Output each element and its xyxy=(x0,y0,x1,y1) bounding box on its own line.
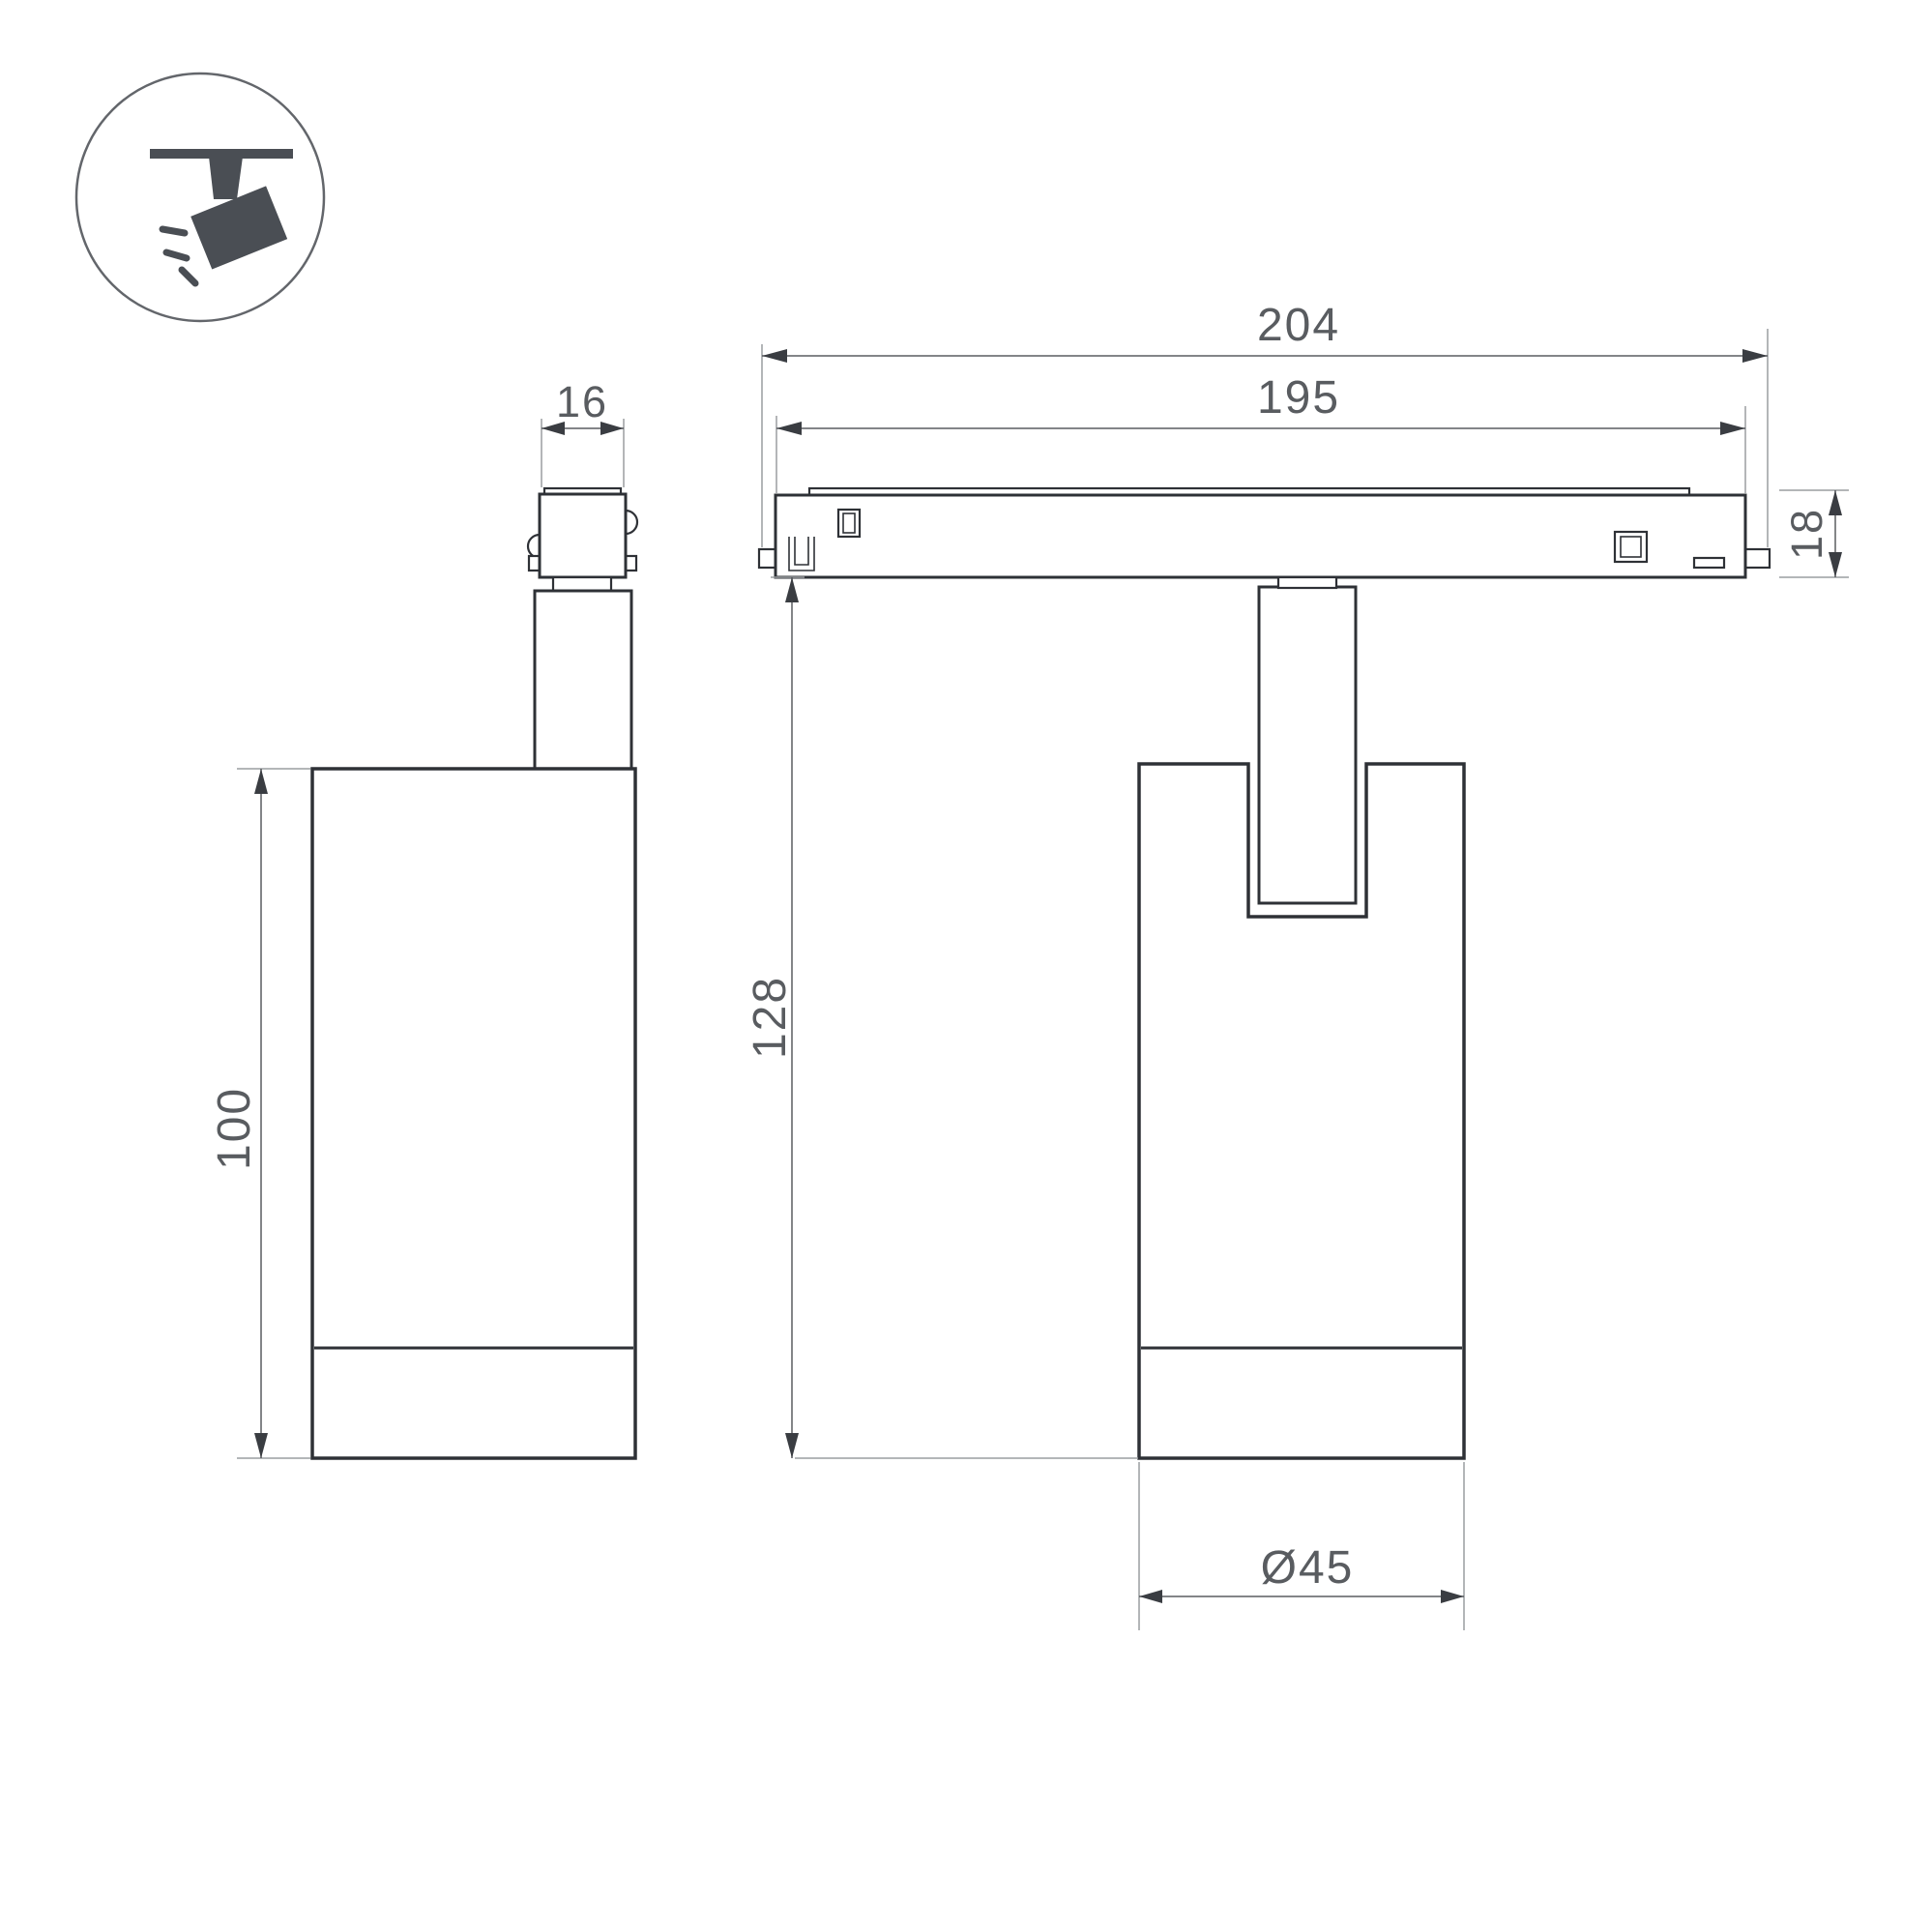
dimension-track-height: 18 xyxy=(1779,490,1849,577)
dim-label-stem-width: 16 xyxy=(556,377,608,426)
track-slot xyxy=(1694,558,1724,568)
dimension-body-diameter: Ø45 xyxy=(1139,1462,1464,1630)
stem-neck xyxy=(553,577,611,591)
connector-lug-left xyxy=(529,556,540,571)
stem xyxy=(535,591,631,769)
dim-label-body-diameter: Ø45 xyxy=(1261,1542,1355,1594)
front-view xyxy=(759,488,1770,1458)
dimension-drawing-page: 16 100 204 xyxy=(0,0,1932,1932)
track-end-tab-left xyxy=(759,549,776,568)
connector-lug-right xyxy=(626,556,636,571)
stem-connector xyxy=(1278,577,1336,588)
dim-label-body-height: 100 xyxy=(209,1087,260,1170)
product-icon xyxy=(76,73,324,321)
dim-label-track-height: 18 xyxy=(1782,508,1831,560)
dimension-body-height: 100 xyxy=(209,769,310,1458)
drawing-canvas: 16 100 204 xyxy=(0,0,1932,1932)
magnetic-track xyxy=(776,495,1745,577)
lamp-body xyxy=(312,769,635,1458)
dim-label-rail-length: 195 xyxy=(1257,372,1340,424)
icon-circle-border xyxy=(76,73,324,321)
dim-label-overall-height: 128 xyxy=(745,976,796,1059)
dimension-stem-width: 16 xyxy=(542,377,624,487)
icon-stem xyxy=(209,157,243,199)
stem-front xyxy=(1259,587,1356,903)
dimension-overall-height: 128 xyxy=(745,577,1138,1458)
light-ray-icon xyxy=(162,229,185,233)
dim-label-total-length: 204 xyxy=(1257,300,1340,351)
side-view xyxy=(312,488,637,1458)
dimension-rail-length: 195 xyxy=(776,372,1745,493)
track-end-tab-right xyxy=(1745,549,1770,568)
track-adapter xyxy=(540,494,626,577)
